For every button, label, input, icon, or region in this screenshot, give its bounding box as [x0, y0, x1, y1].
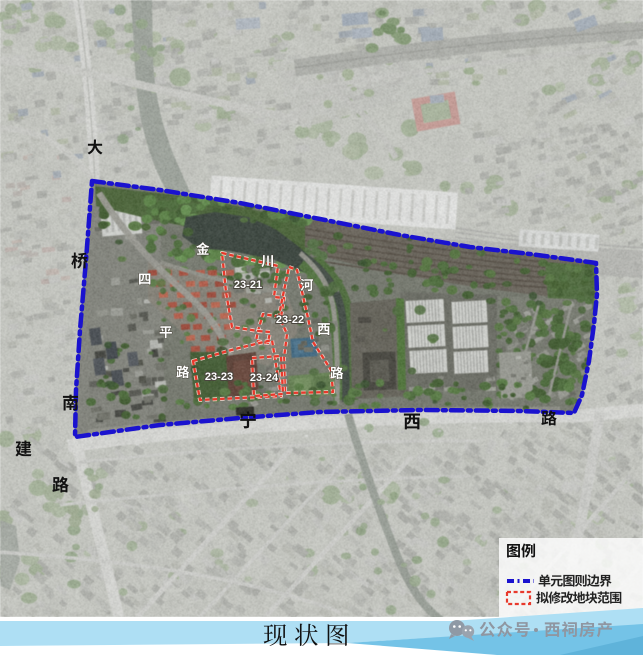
svg-text:23-23: 23-23 — [205, 371, 233, 383]
svg-text:23-24: 23-24 — [250, 372, 279, 384]
svg-text:23-21: 23-21 — [234, 279, 262, 291]
svg-text:23-22: 23-22 — [276, 314, 304, 326]
